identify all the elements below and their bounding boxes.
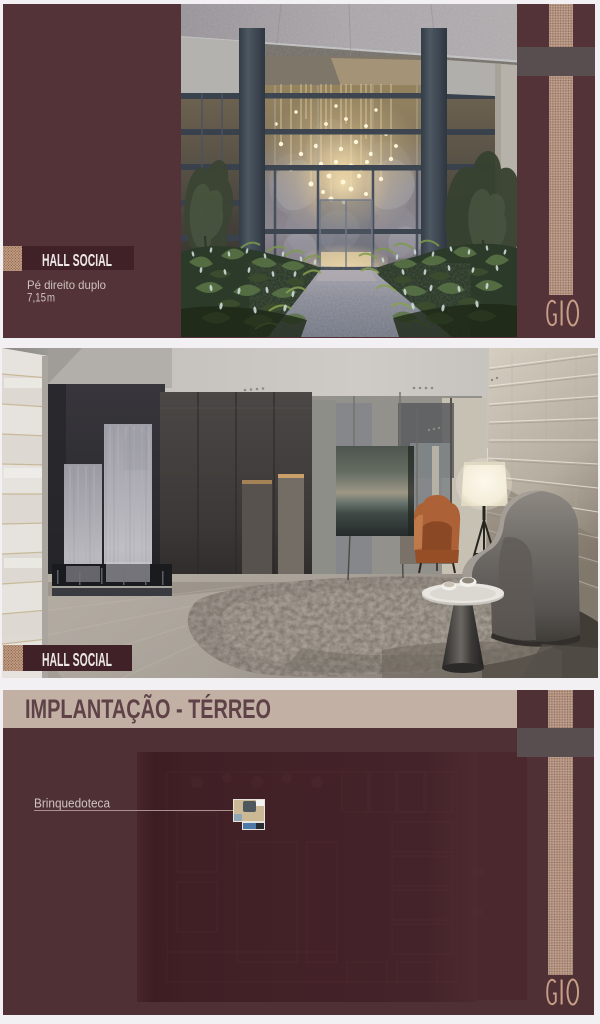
svg-text:7,15 m: 7,15 m <box>27 291 55 304</box>
svg-text:HALL SOCIAL: HALL SOCIAL <box>42 250 112 270</box>
svg-text:Brinquedoteca: Brinquedoteca <box>34 797 110 811</box>
svg-text:IMPLANTAÇÃO - TÉRREO: IMPLANTAÇÃO - TÉRREO <box>25 693 271 724</box>
svg-text:HALL SOCIAL: HALL SOCIAL <box>42 650 112 670</box>
